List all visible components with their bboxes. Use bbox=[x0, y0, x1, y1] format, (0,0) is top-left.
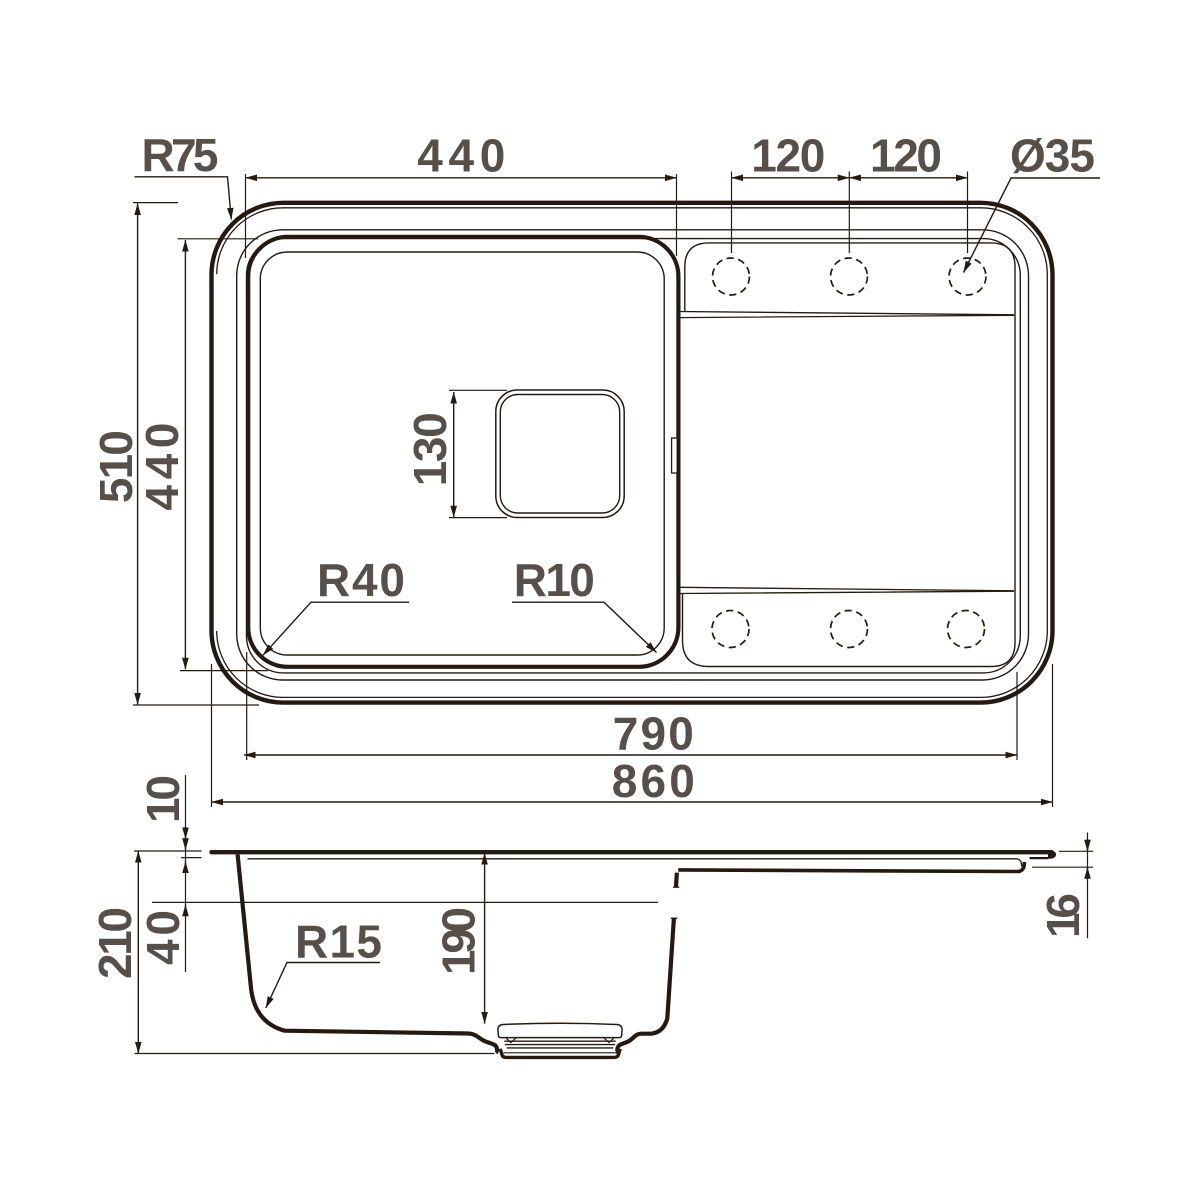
svg-text:860: 860 bbox=[612, 755, 695, 807]
svg-text:510: 510 bbox=[90, 430, 142, 503]
svg-text:R40: R40 bbox=[317, 554, 405, 606]
svg-text:16: 16 bbox=[1037, 893, 1089, 938]
svg-text:190: 190 bbox=[433, 907, 485, 975]
svg-text:440: 440 bbox=[136, 423, 188, 511]
svg-text:R75: R75 bbox=[142, 129, 219, 181]
svg-text:120: 120 bbox=[751, 130, 825, 182]
svg-text:120: 120 bbox=[870, 130, 942, 182]
svg-text:210: 210 bbox=[89, 907, 141, 979]
svg-text:790: 790 bbox=[613, 707, 694, 759]
svg-text:10: 10 bbox=[137, 775, 189, 823]
svg-text:130: 130 bbox=[404, 412, 456, 486]
svg-text:Ø35: Ø35 bbox=[1010, 130, 1095, 182]
svg-text:R10: R10 bbox=[514, 554, 595, 606]
svg-text:R15: R15 bbox=[295, 916, 382, 968]
svg-text:440: 440 bbox=[417, 130, 505, 182]
